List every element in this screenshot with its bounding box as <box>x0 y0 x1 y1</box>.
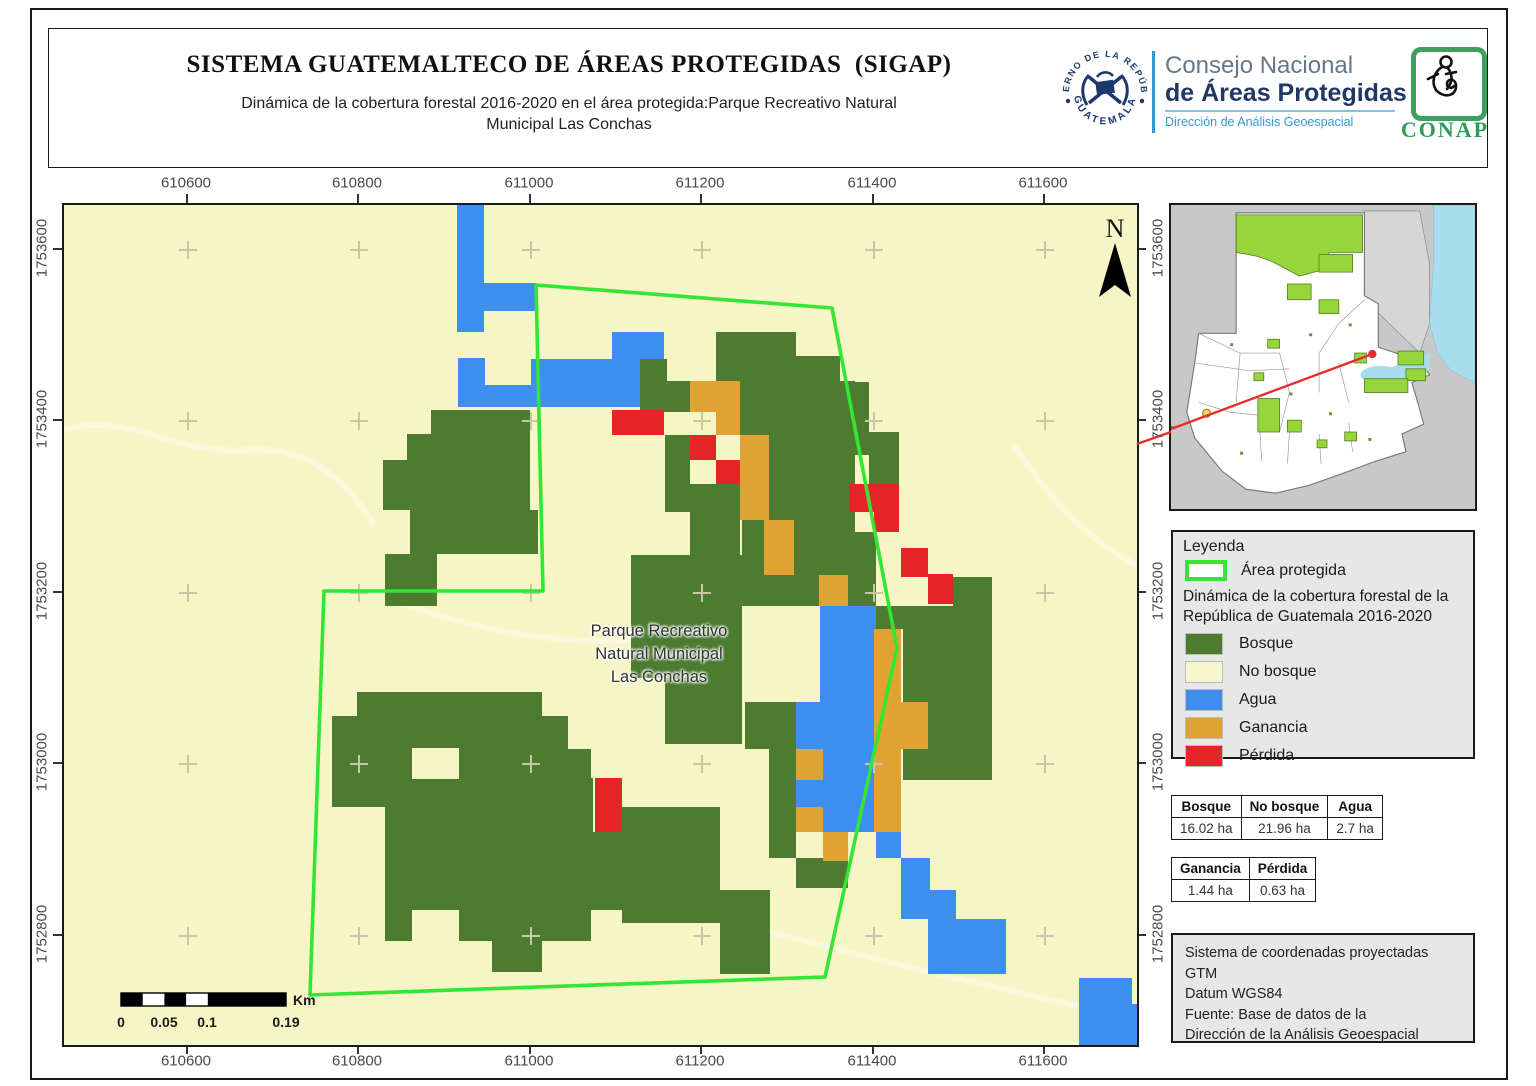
axis-tick-label: 611000 <box>505 1053 554 1070</box>
bosque-cell <box>740 381 855 435</box>
svg-text:0.05: 0.05 <box>150 1014 177 1030</box>
sheet-subtitle: Dinámica de la cobertura forestal 2016-2… <box>179 93 959 135</box>
axis-tick-label: 1753000 <box>34 733 51 791</box>
legend-item-agua: Agua <box>1185 689 1463 711</box>
bosque-cell <box>332 778 385 807</box>
conap-logo <box>1411 47 1487 121</box>
bosque-cell <box>819 532 876 575</box>
bosque-cell <box>568 749 591 778</box>
axis-tick <box>529 194 531 203</box>
ganancia-cell <box>716 381 740 435</box>
bosque-cell <box>385 554 437 606</box>
axis-tick-label: 610600 <box>161 1053 211 1070</box>
axis-tick-label: 1753600 <box>1150 219 1167 277</box>
main-map[interactable]: N 00.050.10.19Km Parque Recreativo Natur… <box>62 203 1139 1047</box>
axis-tick-label: 611400 <box>848 1053 897 1070</box>
agua-cell <box>1132 1004 1137 1045</box>
bosque-cell <box>431 410 530 460</box>
perdida-cell <box>612 410 664 435</box>
no-bosque-cell <box>412 748 459 779</box>
axis-tick <box>700 194 702 203</box>
ganancia-cell <box>819 575 848 606</box>
svg-text:0.1: 0.1 <box>197 1014 217 1030</box>
agua-cell <box>485 385 531 407</box>
bosque-cell <box>869 455 899 484</box>
agua-cell <box>820 606 876 832</box>
leader-line-extension <box>1137 424 1171 448</box>
sheet-title: SISTEMA GUATEMALTECO DE ÁREAS PROTEGIDAS… <box>109 51 1029 79</box>
bosque-cell <box>769 749 796 858</box>
perdida-swatch <box>1185 745 1223 767</box>
axis-tick-label: 1753200 <box>34 562 51 620</box>
axis-tick <box>1043 194 1045 203</box>
svg-text:N: N <box>1106 214 1125 243</box>
protected-area-swatch <box>1185 560 1227 581</box>
perdida-cell <box>928 574 953 604</box>
axis-tick-label: 611200 <box>676 1053 725 1070</box>
ganancia-cell <box>823 832 848 861</box>
axis-tick <box>53 934 62 936</box>
bosque-cell <box>661 381 692 412</box>
legend-item-no-bosque: No bosque <box>1185 661 1463 683</box>
perdida-cell <box>901 548 928 577</box>
area-table-main: Bosque No bosque Agua 16.02 ha 21.96 ha … <box>1171 795 1383 840</box>
conap-acronym: CONAP <box>1397 117 1493 143</box>
bosque-cell <box>383 460 530 510</box>
perdida-cell <box>874 512 899 532</box>
bosque-swatch <box>1185 633 1223 655</box>
guatemala-locator-map[interactable] <box>1169 203 1477 511</box>
axis-tick-label: 611400 <box>848 175 897 192</box>
axis-tick-label: 610800 <box>332 1053 382 1070</box>
agua-cell <box>457 205 484 332</box>
bosque-cell <box>720 890 770 974</box>
council-line1: Consejo Nacional <box>1165 53 1415 79</box>
axis-tick-label: 1753600 <box>34 219 51 277</box>
svg-text:Km: Km <box>293 992 316 1008</box>
axis-tick-label: 610600 <box>161 175 211 192</box>
agua-cell <box>531 359 640 407</box>
legend-item-ganancia: Ganancia <box>1185 717 1463 739</box>
header: SISTEMA GUATEMALTECO DE ÁREAS PROTEGIDAS… <box>48 28 1488 168</box>
no-bosque-cell <box>716 435 740 460</box>
bosque-cell <box>716 332 796 358</box>
axis-tick-label: 611600 <box>1019 175 1068 192</box>
axis-tick <box>357 194 359 203</box>
axis-tick-label: 610800 <box>332 175 382 192</box>
axis-tick <box>186 194 188 203</box>
bosque-cell <box>745 702 796 749</box>
ganancia-cell <box>690 381 716 412</box>
agua-cell <box>484 283 536 311</box>
perdida-cell <box>849 484 899 512</box>
north-arrow-icon: N <box>1099 214 1131 297</box>
axis-tick-label: 1753000 <box>1150 733 1167 791</box>
axis-tick-label: 1753400 <box>34 390 51 448</box>
agua-cell <box>796 702 823 749</box>
bosque-cell <box>622 807 720 923</box>
axis-tick-label: 611200 <box>676 175 725 192</box>
ganancia-cell <box>796 807 823 832</box>
bosque-cell <box>742 575 819 606</box>
agua-cell <box>458 358 485 407</box>
logo-divider <box>1152 51 1155 133</box>
no-bosque-swatch <box>1185 661 1223 683</box>
axis-tick-label: 1752800 <box>1150 905 1167 963</box>
legend-class-header: Dinámica de la cobertura forestal de la … <box>1183 587 1463 627</box>
perdida-cell <box>716 460 740 484</box>
map-sheet: SISTEMA GUATEMALTECO DE ÁREAS PROTEGIDAS… <box>0 0 1536 1086</box>
locator-dot <box>1368 350 1376 358</box>
wordmark-rule <box>1165 110 1395 112</box>
axis-tick <box>53 248 62 250</box>
agua-cell <box>1079 978 1132 1045</box>
council-line3: Dirección de Análisis Geoespacial <box>1165 115 1415 129</box>
bosque-cell <box>407 434 431 460</box>
monkey-icon <box>1416 52 1472 106</box>
no-bosque-cell <box>412 910 459 941</box>
agua-cell <box>876 832 901 858</box>
agua-swatch <box>1185 689 1223 711</box>
conap-wordmark: Consejo Nacional de Áreas Protegidas Dir… <box>1165 53 1415 129</box>
ganancia-cell <box>901 702 928 749</box>
bosque-cell <box>953 577 992 606</box>
scale-bar: 00.050.10.19Km <box>117 992 315 1030</box>
axis-tick <box>53 762 62 764</box>
ganancia-cell <box>764 520 794 575</box>
agua-cell <box>796 780 823 807</box>
bosque-cell <box>385 778 593 876</box>
ganancia-cell <box>740 435 769 520</box>
government-seal-logo: GOBIERNO DE LA REPÚBLICA GUATEMALA <box>1057 43 1153 139</box>
legend: Leyenda Área protegida Dinámica de la co… <box>1171 530 1475 759</box>
ganancia-cell <box>796 749 823 780</box>
bosque-cell <box>492 941 542 972</box>
source-info-box: Sistema de coordenadas proyectadas GTM D… <box>1171 933 1475 1043</box>
perdida-cell <box>595 778 622 832</box>
bosque-cell <box>848 575 876 606</box>
svg-text:0.19: 0.19 <box>272 1014 299 1030</box>
agua-cell <box>928 919 1006 974</box>
bosque-cell <box>690 484 740 555</box>
agua-cell <box>612 332 664 359</box>
axis-tick <box>872 194 874 203</box>
area-table-change: Ganancia Pérdida 1.44 ha 0.63 ha <box>1171 857 1316 902</box>
park-name-label: Parque Recreativo Natural Municipal Las … <box>554 620 764 689</box>
bosque-cell <box>855 432 899 455</box>
axis-tick <box>53 591 62 593</box>
svg-text:0: 0 <box>117 1014 125 1030</box>
bosque-cell <box>665 435 690 512</box>
legend-title: Leyenda <box>1183 538 1463 556</box>
axis-tick-label: 611000 <box>505 175 554 192</box>
legend-item-bosque: Bosque <box>1185 633 1463 655</box>
bosque-cell <box>410 510 538 554</box>
perdida-cell <box>690 435 716 460</box>
bosque-cell <box>903 606 992 780</box>
protected-area-label: Área protegida <box>1241 562 1346 580</box>
bosque-cell <box>568 832 622 910</box>
bosque-cell <box>769 435 855 532</box>
bosque-cell <box>716 356 840 382</box>
axis-tick-label: 611600 <box>1019 1053 1068 1070</box>
ganancia-swatch <box>1185 717 1223 739</box>
legend-item-perdida: Pérdida <box>1185 745 1463 767</box>
agua-cell <box>901 858 930 919</box>
axis-tick-label: 1752800 <box>34 905 51 963</box>
agua-cell <box>930 890 956 919</box>
bosque-cell <box>796 858 848 888</box>
bosque-cell <box>742 515 767 575</box>
axis-tick <box>53 419 62 421</box>
axis-tick-label: 1753200 <box>1150 562 1167 620</box>
council-line2: de Áreas Protegidas <box>1165 79 1415 107</box>
bosque-cell <box>357 692 542 718</box>
